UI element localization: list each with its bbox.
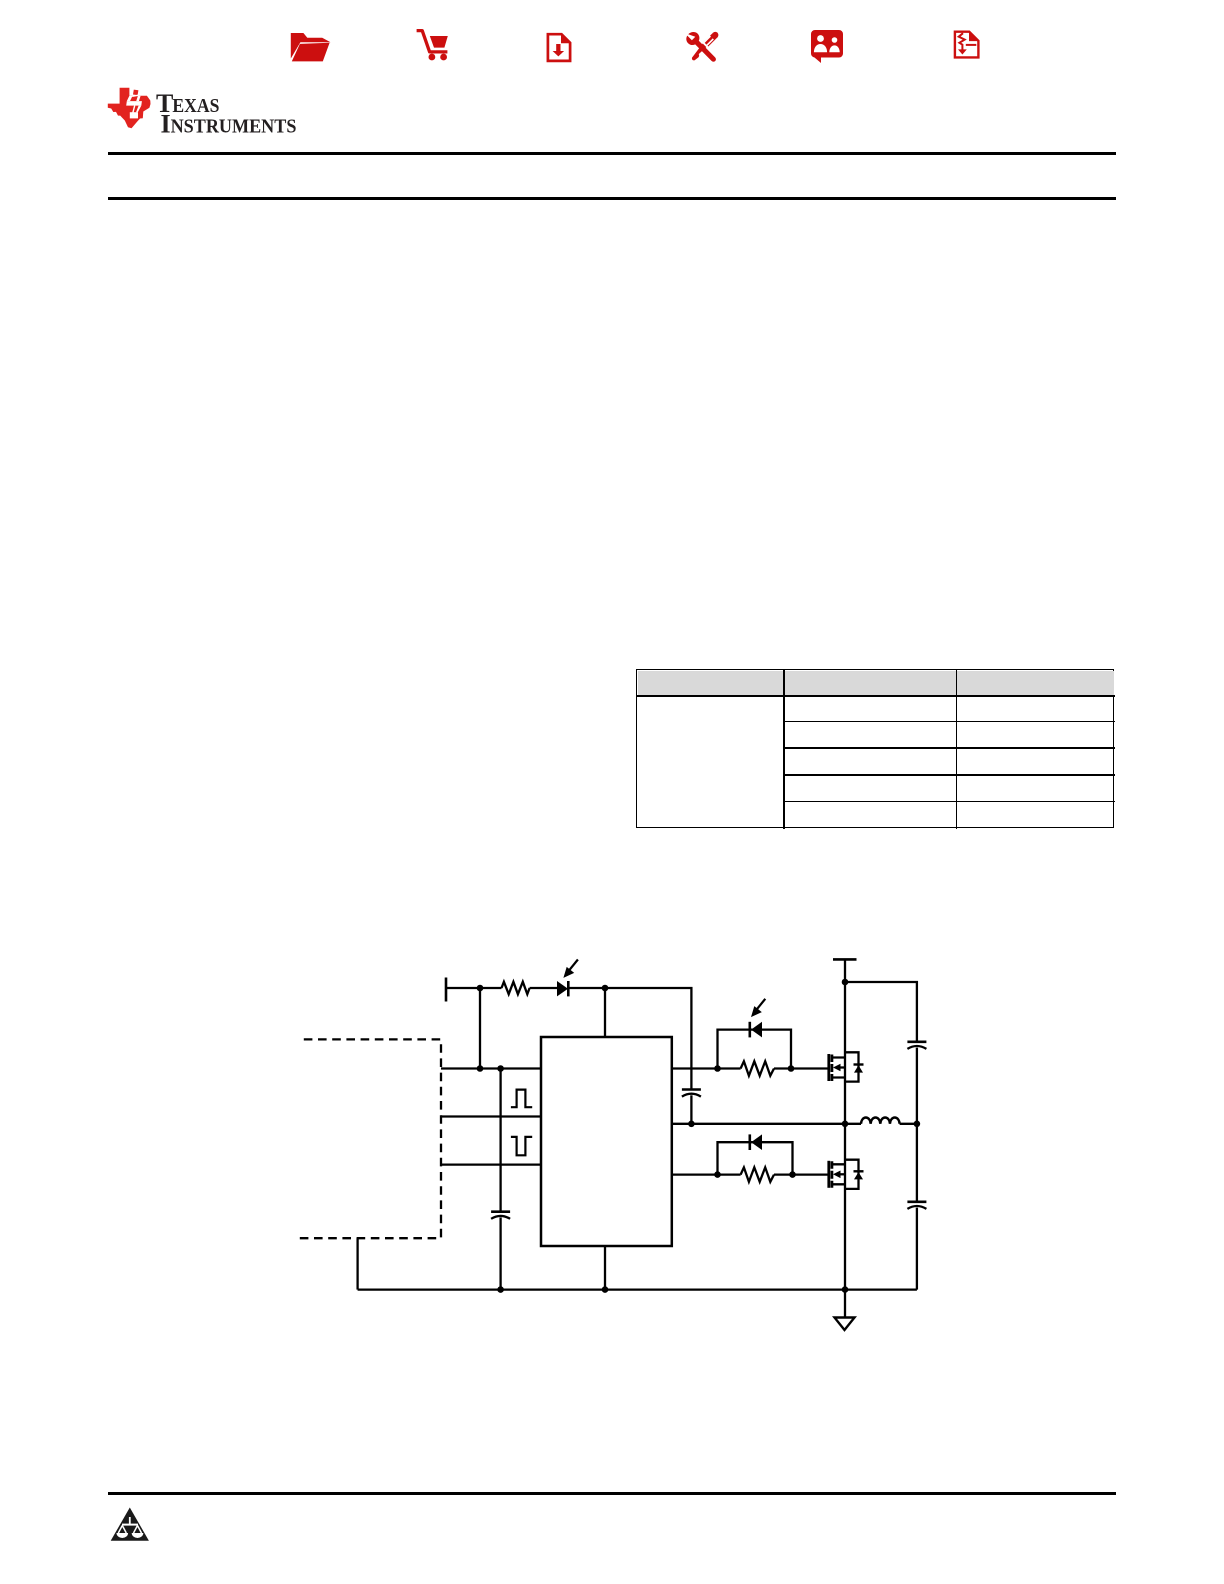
svg-text:NSTRUMENTS: NSTRUMENTS xyxy=(171,115,297,137)
svg-text:I: I xyxy=(161,109,171,138)
svg-text:EXAS: EXAS xyxy=(172,95,219,117)
